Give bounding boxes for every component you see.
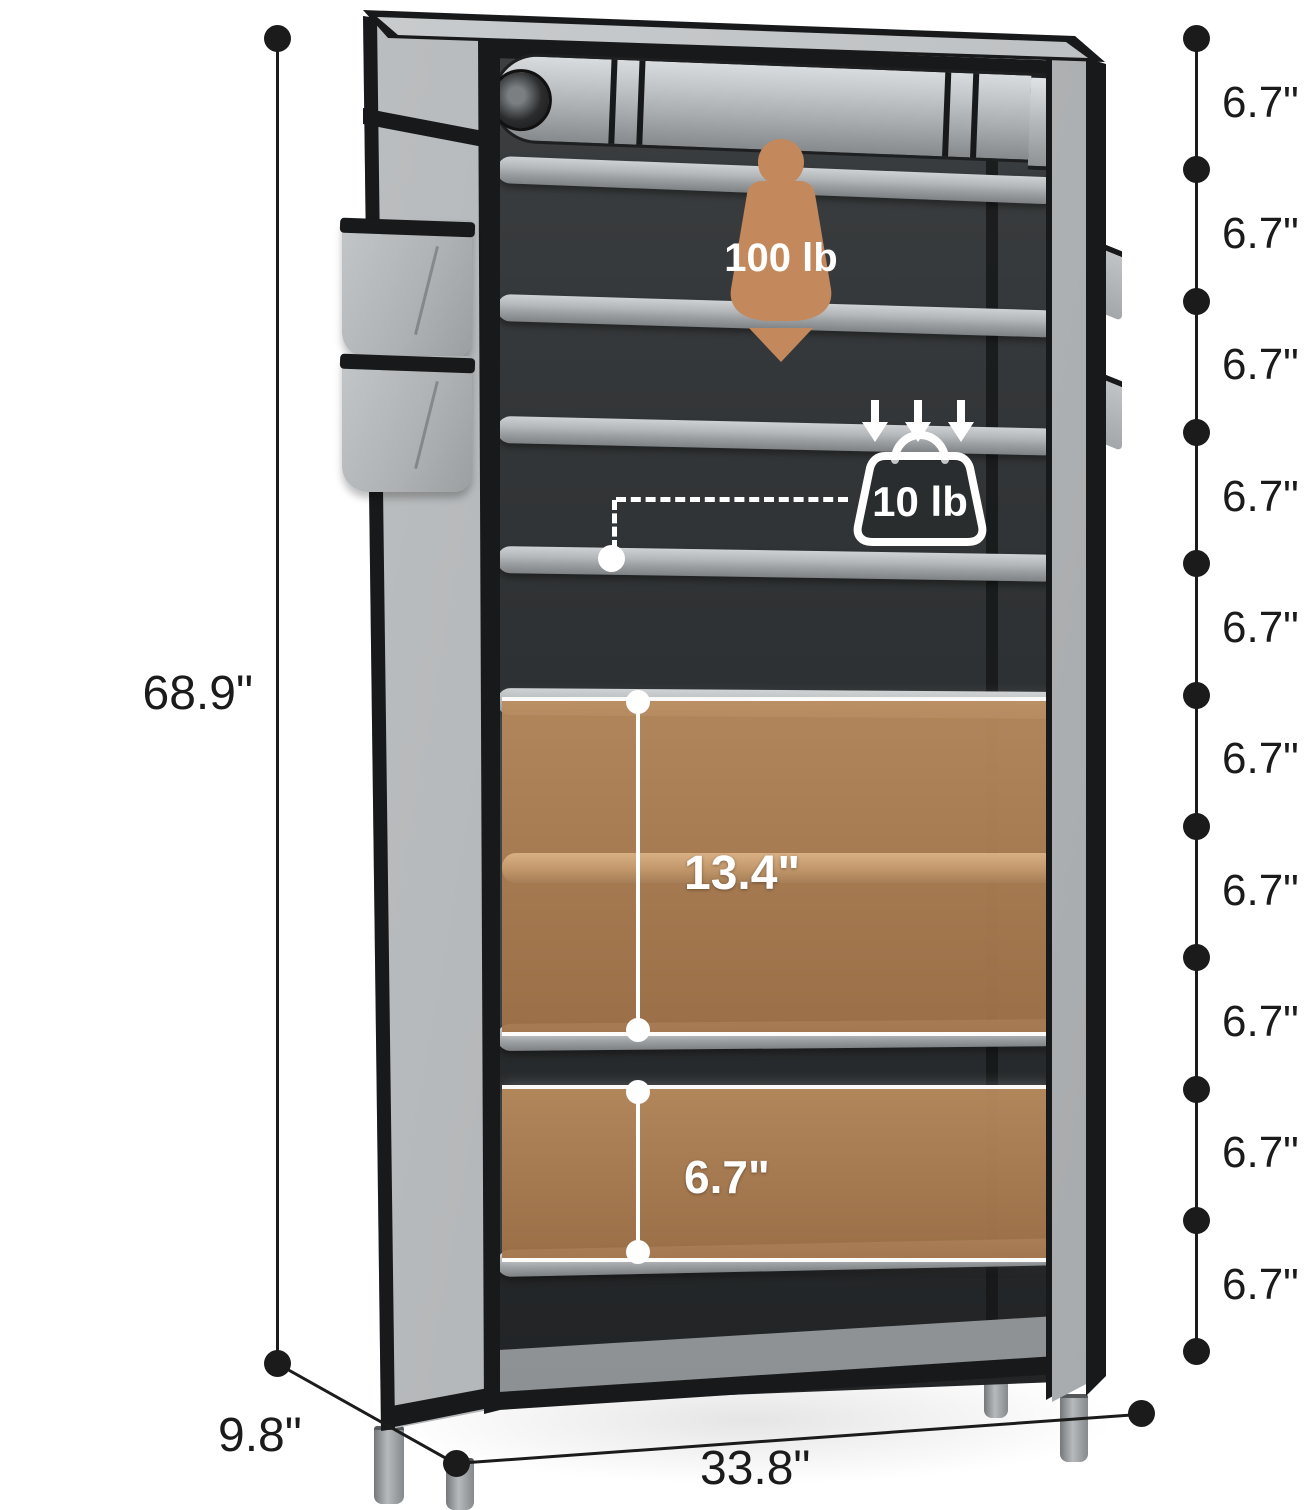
tier-spacing-label: 6.7"	[1222, 472, 1299, 522]
max-load-label: 100 lb	[706, 236, 856, 281]
ruler-dot	[1183, 682, 1210, 709]
width-label: 33.8"	[700, 1441, 810, 1496]
measure-dot	[626, 1018, 650, 1042]
tier-spacing-label: 6.7"	[1222, 603, 1299, 653]
side-pocket	[342, 220, 472, 358]
ruler-dot	[1183, 419, 1210, 446]
ruler-dot	[1183, 1207, 1210, 1234]
pointer-dot	[598, 545, 625, 572]
compartment-height-label-large: 13.4"	[684, 846, 800, 901]
tier-spacing-label: 6.7"	[1222, 997, 1299, 1047]
pocket-trim	[340, 218, 476, 238]
tier-spacing-label: 6.7"	[1222, 340, 1299, 390]
pointer-dashed-line	[616, 497, 848, 502]
ruler-dot	[1183, 156, 1210, 183]
tier-spacing-label: 6.7"	[1222, 209, 1299, 259]
side-pocket	[342, 356, 472, 492]
pocket-crease	[414, 381, 439, 469]
ruler-dot	[1128, 1400, 1155, 1427]
shelf-load-label: 10 lb	[840, 478, 1000, 526]
measure-dot	[626, 1240, 650, 1264]
ruler-dot	[264, 25, 291, 52]
highlight-box-small	[502, 1085, 1053, 1262]
pocket-crease	[414, 246, 439, 335]
max-load-badge: 100 lb	[706, 136, 856, 362]
ruler-dot	[1183, 944, 1210, 971]
ruler-dot	[1183, 25, 1210, 52]
ruler-dot	[1183, 288, 1210, 315]
tier-spacing-label: 6.7"	[1222, 78, 1299, 128]
measure-line-small	[636, 1096, 640, 1252]
shelf-load-badge: 10 lb	[840, 412, 1000, 556]
measure-dot	[626, 690, 650, 714]
ruler-dot	[1183, 813, 1210, 840]
ruler-dot	[1183, 1076, 1210, 1103]
rack-foot	[374, 1426, 404, 1504]
ruler-dot	[1183, 1338, 1210, 1365]
height-label: 68.9"	[83, 666, 253, 721]
rack-foot	[1060, 1394, 1088, 1462]
depth-label: 9.8"	[218, 1408, 302, 1463]
pointer-dashed-line	[612, 500, 617, 550]
measure-line-large	[636, 708, 640, 1030]
tier-spacing-label: 6.7"	[1222, 866, 1299, 916]
ruler-dot	[1183, 550, 1210, 577]
pocket-trim	[340, 354, 476, 374]
height-ruler-line	[276, 38, 279, 1363]
compartment-height-label-small: 6.7"	[684, 1150, 770, 1204]
tier-spacing-label: 6.7"	[1222, 1128, 1299, 1178]
measure-dot	[626, 1080, 650, 1104]
product-dimension-diagram: 13.4" 6.7" 100 lb 10 lb	[0, 0, 1307, 1500]
tier-spacing-label: 6.7"	[1222, 1260, 1299, 1310]
tier-spacing-label: 6.7"	[1222, 734, 1299, 784]
